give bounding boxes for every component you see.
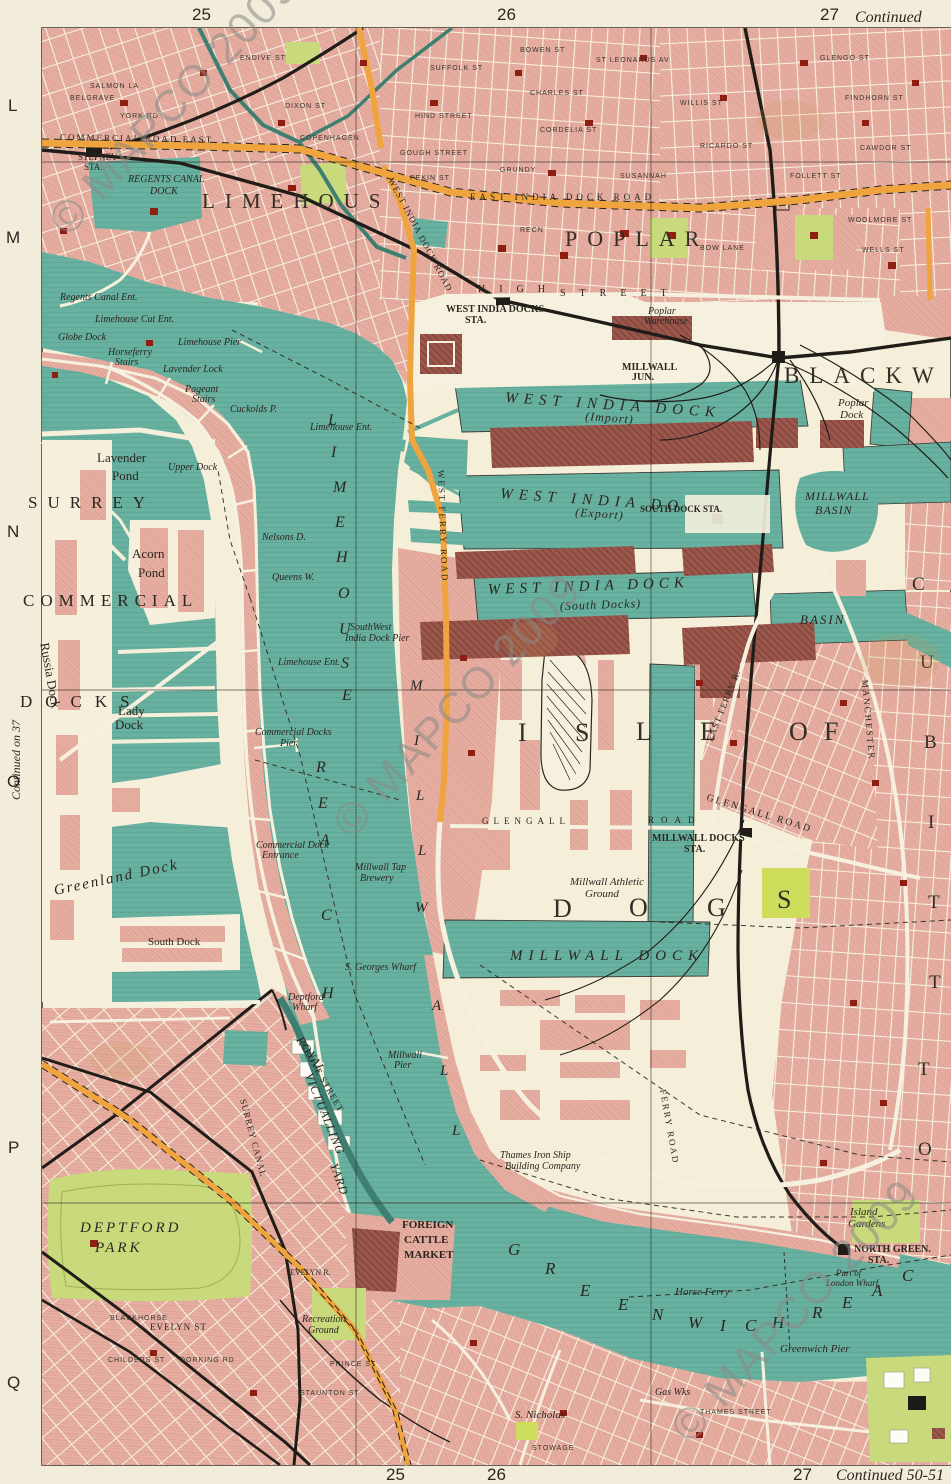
svg-text:Nelsons D.: Nelsons D. <box>261 532 306 543</box>
svg-text:Limehouse Cut Ent.: Limehouse Cut Ent. <box>94 314 174 325</box>
svg-text:H: H <box>335 549 349 566</box>
svg-text:O: O <box>918 1139 932 1160</box>
svg-text:Pier: Pier <box>393 1060 411 1071</box>
svg-text:GOUGH STREET: GOUGH STREET <box>400 150 468 157</box>
svg-text:Pond: Pond <box>112 468 139 483</box>
svg-text:E: E <box>841 1293 853 1312</box>
svg-text:Q: Q <box>7 1373 20 1392</box>
svg-text:BLACKW: BLACKW <box>784 363 944 388</box>
svg-text:Warehouse: Warehouse <box>644 316 688 327</box>
svg-text:26: 26 <box>487 1465 506 1484</box>
svg-text:A: A <box>431 998 442 1014</box>
svg-text:Recreation: Recreation <box>301 1314 346 1325</box>
svg-text:GRUNDY: GRUNDY <box>500 167 536 174</box>
svg-text:CATTLE: CATTLE <box>404 1234 448 1246</box>
svg-text:DEPTFORD: DEPTFORD <box>79 1220 182 1236</box>
svg-text:COPENHAGEN: COPENHAGEN <box>300 135 360 142</box>
svg-text:C: C <box>321 907 332 924</box>
svg-text:Dock: Dock <box>839 409 864 421</box>
svg-text:Thames Iron Ship: Thames Iron Ship <box>500 1150 571 1161</box>
svg-text:T: T <box>929 972 941 993</box>
svg-text:25: 25 <box>192 5 211 24</box>
svg-text:ROAD: ROAD <box>648 815 702 825</box>
svg-text:LIMEHOUS: LIMEHOUS <box>202 189 391 213</box>
svg-text:O: O <box>338 585 350 602</box>
svg-text:N: N <box>651 1305 665 1324</box>
svg-text:Lady: Lady <box>118 703 145 718</box>
svg-text:Millwall Tap: Millwall Tap <box>354 862 406 873</box>
svg-text:27: 27 <box>820 5 839 24</box>
svg-text:CAWDOR ST: CAWDOR ST <box>860 145 912 152</box>
svg-text:Brewery: Brewery <box>360 873 394 884</box>
svg-text:PRINCE ST: PRINCE ST <box>330 1361 376 1368</box>
svg-text:Regents Canal Ent.: Regents Canal Ent. <box>59 292 138 303</box>
svg-text:SALMON LA: SALMON LA <box>90 83 139 90</box>
svg-text:Pier: Pier <box>279 738 297 749</box>
svg-text:L: L <box>417 843 426 859</box>
svg-text:MILLWALL DOCK: MILLWALL DOCK <box>509 948 704 964</box>
svg-text:Entrance: Entrance <box>261 850 299 861</box>
svg-text:I: I <box>518 718 527 747</box>
svg-text:Poplar: Poplar <box>837 397 869 409</box>
svg-text:27: 27 <box>793 1465 812 1484</box>
svg-text:Ground: Ground <box>585 888 619 900</box>
svg-text:CHARLES ST: CHARLES ST <box>530 90 584 97</box>
svg-text:FOLLETT ST: FOLLETT ST <box>790 173 842 180</box>
svg-text:L: L <box>636 717 652 746</box>
svg-text:D: D <box>553 894 572 923</box>
svg-text:Queens W.: Queens W. <box>272 572 314 583</box>
svg-text:HIND STREET: HIND STREET <box>415 113 473 120</box>
svg-text:STA.: STA. <box>465 315 487 326</box>
svg-text:25: 25 <box>386 1465 405 1484</box>
svg-text:ST LEONARDS AV: ST LEONARDS AV <box>596 57 670 64</box>
svg-text:SURREY: SURREY <box>28 493 155 512</box>
svg-text:L: L <box>439 1063 448 1079</box>
svg-text:STOWAGE: STOWAGE <box>532 1445 574 1452</box>
svg-text:L: L <box>451 1123 460 1139</box>
svg-text:E: E <box>617 1295 629 1314</box>
svg-text:M: M <box>409 678 424 694</box>
svg-text:R: R <box>315 759 326 776</box>
svg-text:O: O <box>629 893 648 922</box>
svg-text:WOOLMORE ST: WOOLMORE ST <box>848 217 912 224</box>
svg-text:Limehouse Pier: Limehouse Pier <box>177 337 241 348</box>
svg-text:Stairs: Stairs <box>192 394 215 405</box>
svg-text:C: C <box>912 574 925 595</box>
svg-text:MARKET: MARKET <box>404 1249 454 1261</box>
svg-text:MILLWALL DOCKS: MILLWALL DOCKS <box>652 833 745 844</box>
svg-text:N: N <box>7 522 19 541</box>
svg-text:Lavender Lock: Lavender Lock <box>162 364 223 375</box>
svg-text:W: W <box>415 900 429 916</box>
svg-text:E: E <box>334 514 345 531</box>
svg-text:S: S <box>777 885 791 914</box>
svg-text:S: S <box>575 718 589 747</box>
svg-text:WELLS ST: WELLS ST <box>862 247 905 254</box>
svg-text:RICARDO ST: RICARDO ST <box>700 143 753 150</box>
svg-text:BASIN: BASIN <box>815 503 853 517</box>
svg-text:M: M <box>332 479 348 496</box>
svg-text:Building Company: Building Company <box>505 1161 581 1172</box>
svg-text:MILLWALL: MILLWALL <box>804 489 870 503</box>
svg-text:S. Nicholas: S. Nicholas <box>515 1409 565 1421</box>
svg-text:I: I <box>330 444 337 461</box>
svg-text:GLENGALL: GLENGALL <box>482 816 570 826</box>
svg-text:Continued 50-51: Continued 50-51 <box>836 1467 944 1484</box>
svg-text:P: P <box>8 1138 19 1157</box>
svg-text:CORDELIA ST: CORDELIA ST <box>540 127 597 134</box>
svg-text:Millwall Athletic: Millwall Athletic <box>569 876 644 888</box>
svg-text:HIGH: HIGH <box>478 284 559 295</box>
svg-text:EVELYN ST: EVELYN ST <box>150 1322 207 1332</box>
svg-text:EAST INDIA DOCK ROAD: EAST INDIA DOCK ROAD <box>470 192 655 202</box>
svg-text:SOUTH DOCK STA.: SOUTH DOCK STA. <box>640 504 722 514</box>
svg-text:Commercial Docks: Commercial Docks <box>255 727 332 738</box>
svg-text:Continued: Continued <box>855 9 923 26</box>
svg-text:SUSANNAH: SUSANNAH <box>620 173 667 180</box>
svg-text:I: I <box>928 812 934 833</box>
svg-text:CHILDERS ST: CHILDERS ST <box>108 1357 165 1364</box>
svg-text:B: B <box>924 732 937 753</box>
svg-text:T: T <box>918 1059 930 1080</box>
svg-text:Wharf: Wharf <box>292 1002 318 1013</box>
svg-text:G: G <box>707 893 726 922</box>
svg-text:E: E <box>341 687 352 704</box>
svg-text:Pond: Pond <box>138 565 165 580</box>
svg-text:F: F <box>824 717 838 746</box>
svg-text:Globe Dock: Globe Dock <box>58 332 107 343</box>
svg-text:FINDHORN ST: FINDHORN ST <box>845 95 904 102</box>
svg-text:GLENGO ST: GLENGO ST <box>820 55 870 62</box>
svg-text:India Dock Pier: India Dock Pier <box>344 633 410 644</box>
svg-text:O: O <box>789 717 808 746</box>
svg-text:BASIN: BASIN <box>800 612 845 627</box>
svg-text:WILLIS ST: WILLIS ST <box>680 100 723 107</box>
svg-text:W: W <box>688 1313 704 1332</box>
svg-text:C: C <box>902 1266 914 1285</box>
svg-text:Upper Dock: Upper Dock <box>168 462 218 473</box>
svg-text:L: L <box>415 788 424 804</box>
svg-text:SUFFOLK ST: SUFFOLK ST <box>430 65 483 72</box>
svg-text:T: T <box>928 892 940 913</box>
svg-text:BOWEN ST: BOWEN ST <box>520 47 565 54</box>
svg-text:Limehouse Ent.: Limehouse Ent. <box>277 657 340 668</box>
svg-text:Lavender: Lavender <box>97 450 147 465</box>
svg-text:DOCK: DOCK <box>149 186 179 197</box>
svg-text:Cuckolds P.: Cuckolds P. <box>230 404 277 415</box>
svg-text:EVELYN R.: EVELYN R. <box>290 1268 331 1277</box>
svg-text:Dock: Dock <box>115 717 144 732</box>
svg-text:South Dock: South Dock <box>148 936 201 948</box>
svg-text:Continued on 37: Continued on 37 <box>9 719 23 800</box>
svg-text:BLACKHORSE: BLACKHORSE <box>110 1315 168 1322</box>
svg-text:G: G <box>508 1240 520 1259</box>
svg-text:26: 26 <box>497 5 516 24</box>
svg-text:POPLAR: POPLAR <box>565 226 709 251</box>
svg-text:R: R <box>544 1259 556 1278</box>
svg-text:M: M <box>6 228 20 247</box>
svg-text:Ground: Ground <box>308 1325 340 1336</box>
svg-text:BELGRAVE: BELGRAVE <box>70 95 115 102</box>
svg-text:WEST INDIA DOCKS: WEST INDIA DOCKS <box>446 304 545 315</box>
svg-text:Limehouse Ent.: Limehouse Ent. <box>309 422 372 433</box>
svg-text:L: L <box>8 96 17 115</box>
svg-text:PARK: PARK <box>94 1240 143 1256</box>
svg-text:Acorn: Acorn <box>132 546 165 561</box>
svg-text:FOREIGN: FOREIGN <box>402 1219 453 1231</box>
svg-text:STAUNTON ST: STAUNTON ST <box>300 1390 360 1397</box>
svg-text:S: S <box>341 655 349 672</box>
svg-text:Stairs: Stairs <box>115 357 138 368</box>
svg-text:RECN: RECN <box>520 227 544 234</box>
svg-text:STREET: STREET <box>560 288 681 299</box>
svg-text:COMMERCIAL: COMMERCIAL <box>23 591 198 610</box>
svg-text:DIXON ST: DIXON ST <box>285 103 326 110</box>
svg-text:E: E <box>579 1281 591 1300</box>
svg-text:DORKING RD: DORKING RD <box>180 1357 235 1364</box>
svg-text:PEKIN ST: PEKIN ST <box>410 175 450 182</box>
svg-text:STA.: STA. <box>684 844 706 855</box>
